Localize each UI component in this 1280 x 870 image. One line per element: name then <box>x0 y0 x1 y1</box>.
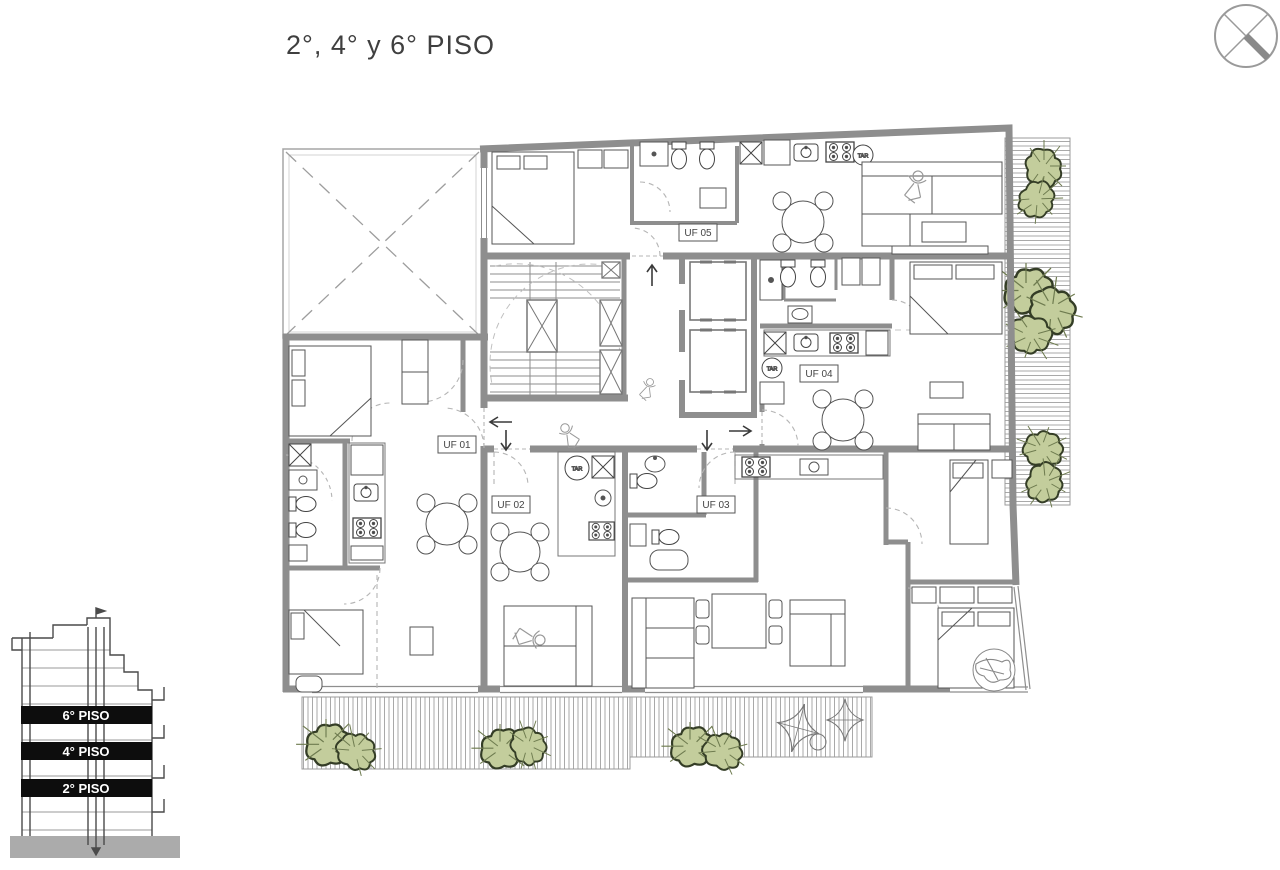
bedrooms-right <box>912 460 1015 691</box>
sink-icon <box>794 144 818 161</box>
svg-text:4° PISO: 4° PISO <box>62 744 109 759</box>
stove-icon <box>589 522 614 540</box>
unit-label-uf03: UF 03 <box>697 496 735 513</box>
stove-icon <box>830 333 858 353</box>
toilet-icon <box>652 530 679 545</box>
side-table <box>410 627 433 655</box>
floorplan-page: 2°, 4° y 6° PISO <box>0 0 1280 870</box>
tar-circle: TAR <box>762 358 782 378</box>
unit-label-uf01: UF 01 <box>438 436 476 453</box>
shaft-icon <box>592 456 614 478</box>
sideboard <box>892 246 988 254</box>
uf04-area: TAR <box>760 258 1002 450</box>
svg-text:2° PISO: 2° PISO <box>62 781 109 796</box>
svg-text:UF 05: UF 05 <box>684 228 712 239</box>
elevator-car <box>690 330 746 392</box>
toilet-icon <box>289 497 316 512</box>
bidet-icon <box>289 523 316 538</box>
plan-canvas: TAR UF 05 <box>0 0 1280 870</box>
uf05-area: TAR <box>492 140 1002 254</box>
void-patio <box>283 149 482 338</box>
potted-plant-icon <box>973 649 1015 691</box>
dining-table <box>712 594 766 648</box>
elevation-diagram: 6° PISO 4° PISO 2° PISO <box>10 608 180 858</box>
floor-bar-2: 2° PISO <box>21 779 152 797</box>
svg-text:TAR: TAR <box>858 154 869 160</box>
svg-text:UF 02: UF 02 <box>497 500 525 511</box>
side-table <box>930 382 963 398</box>
svg-text:UF 03: UF 03 <box>702 500 730 511</box>
svg-text:TAR: TAR <box>767 367 778 373</box>
sink-icon <box>794 334 818 351</box>
sofa-l <box>632 598 694 688</box>
coffee-table <box>922 222 966 242</box>
nightstand <box>992 460 1012 478</box>
unit-label-uf05: UF 05 <box>679 224 717 241</box>
armchair <box>790 600 845 666</box>
person-figure <box>638 377 658 402</box>
toilet-icon <box>630 474 657 489</box>
balcony-deck-bottom-right <box>630 697 872 757</box>
toilet-icon <box>700 142 715 169</box>
shaft-icon <box>764 332 786 354</box>
floor-bar-4: 4° PISO <box>21 742 152 760</box>
north-compass-icon <box>1215 5 1277 67</box>
uf02-area: TAR <box>410 452 615 686</box>
stove-icon <box>353 518 381 538</box>
floor-bar-6: 6° PISO <box>21 706 152 724</box>
unit-label-uf02: UF 02 <box>492 496 530 513</box>
uf01-area <box>289 340 477 692</box>
unit-label-uf04: UF 04 <box>800 365 838 382</box>
elevator-car <box>690 262 746 320</box>
toilet-icon <box>781 260 796 287</box>
stove-icon <box>826 142 854 162</box>
nightstand <box>296 676 322 692</box>
sink-icon <box>354 484 378 501</box>
stove-icon <box>742 457 770 477</box>
ground <box>10 836 180 858</box>
svg-text:TAR: TAR <box>572 467 583 473</box>
svg-text:UF 01: UF 01 <box>443 440 471 451</box>
svg-text:6° PISO: 6° PISO <box>62 708 109 723</box>
tar-circle: TAR <box>565 456 589 480</box>
toilet-icon <box>811 260 826 287</box>
shaft-icon <box>289 444 311 466</box>
svg-text:UF 04: UF 04 <box>805 369 833 380</box>
page-title: 2°, 4° y 6° PISO <box>286 30 495 61</box>
toilet-icon <box>672 142 687 169</box>
shaft-icon <box>740 142 762 164</box>
